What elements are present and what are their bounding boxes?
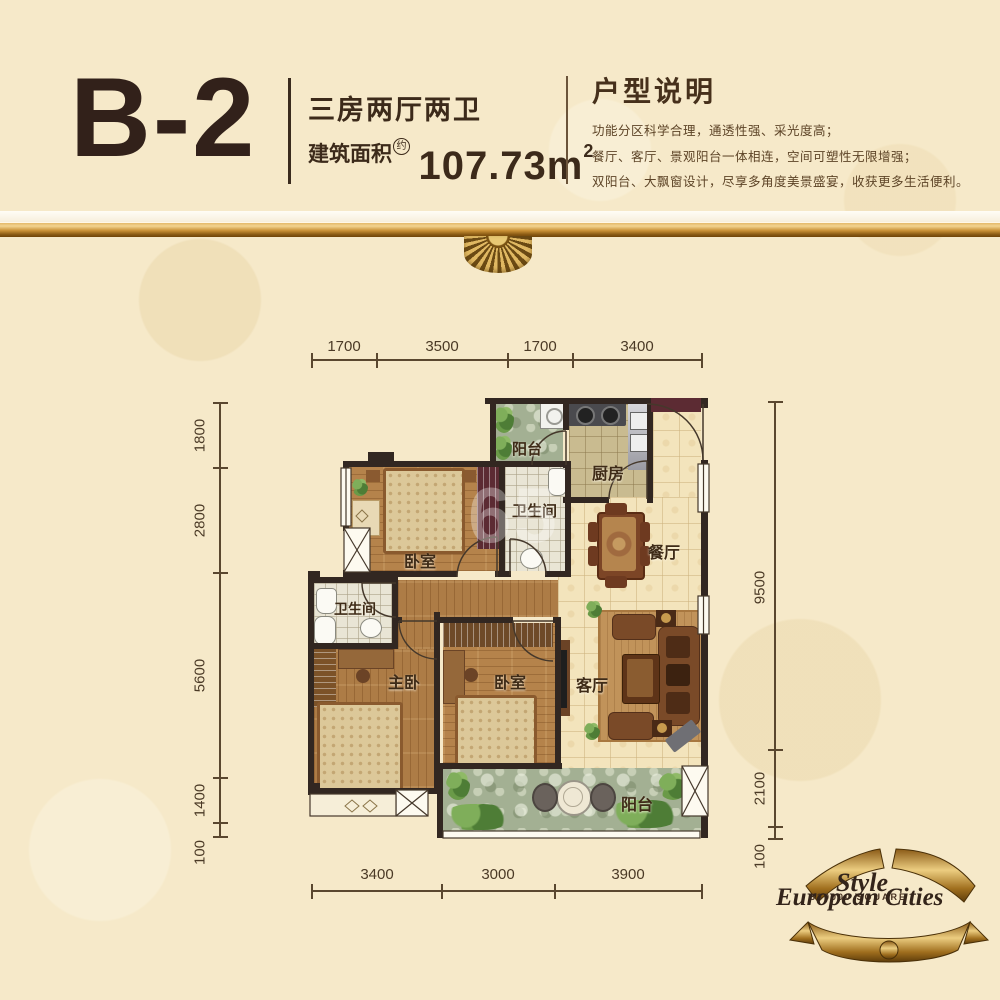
dim-label: 2100: [752, 757, 769, 821]
dim-line-right: [774, 402, 776, 839]
dim-tick: [507, 353, 509, 368]
dim-tick: [572, 353, 574, 368]
room-label-kitchen: 厨房: [592, 460, 624, 484]
dim-tick: [213, 836, 228, 838]
dim-tick: [768, 826, 783, 828]
dim-tick: [376, 353, 378, 368]
dim-tick: [213, 777, 228, 779]
dim-tick: [768, 749, 783, 751]
room-label-bath-left: 卫生间: [334, 599, 376, 619]
room-label-bedroom-mid: 卧室: [494, 669, 526, 693]
room-label-dining: 餐厅: [648, 539, 680, 563]
dim-tick: [311, 884, 313, 899]
logo-name-text: European Cities: [776, 884, 943, 912]
dim-tick: [213, 822, 228, 824]
dim-label: 9500: [752, 556, 769, 620]
dim-tick: [768, 401, 783, 403]
room-label-bedroom-top: 卧室: [404, 548, 436, 572]
dim-label: 2800: [192, 489, 209, 553]
dim-label: 5600: [192, 644, 209, 708]
dim-tick: [311, 353, 313, 368]
dim-label: 1700: [312, 338, 376, 355]
dim-tick: [213, 402, 228, 404]
room-label-living: 客厅: [576, 672, 608, 696]
room-label-master: 主卧: [388, 669, 420, 693]
dim-tick: [554, 884, 556, 899]
dim-label: 3400: [345, 866, 409, 883]
dim-label: 100: [752, 825, 769, 889]
dim-label: 3500: [410, 338, 474, 355]
dim-label: 3900: [596, 866, 660, 883]
dim-label: 3000: [466, 866, 530, 883]
watermark: 65: [468, 470, 559, 561]
room-label-balcony-bottom: 阳台: [621, 791, 653, 815]
room-label-balcony-top: 阳台: [512, 438, 542, 459]
dim-line-bottom: [312, 890, 702, 892]
dim-tick: [213, 572, 228, 574]
dim-label: 1800: [192, 404, 209, 468]
dim-label: 3400: [605, 338, 669, 355]
dim-label: 100: [192, 821, 209, 885]
dim-tick: [441, 884, 443, 899]
dim-tick: [701, 884, 703, 899]
dim-tick: [768, 838, 783, 840]
dim-tick: [701, 353, 703, 368]
dim-label: 1700: [508, 338, 572, 355]
dim-tick: [213, 467, 228, 469]
